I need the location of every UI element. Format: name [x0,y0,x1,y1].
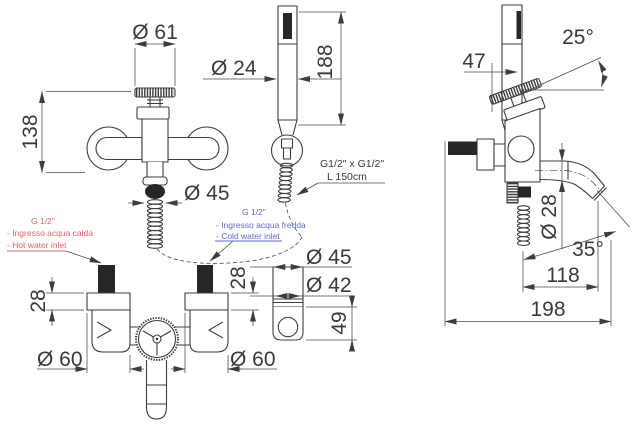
dim-spout-reach: 118 [546,264,579,287]
cold-italian-label: - Ingresso acqua fredda [216,220,306,230]
dim-right-flange-diameter: Ø 60 [230,348,276,371]
left-escutcheon-bottom [92,310,130,352]
technical-drawing: Ø 61 138 Ø 45 Ø 24 [0,0,640,427]
dim-bracket-inner: Ø 42 [306,274,352,297]
left-mount-flange [87,293,130,310]
cold-inlet-annotation: G 1/2" - Ingresso acqua fredda - Cold wa… [210,207,306,261]
dim-total-depth: 198 [530,298,565,321]
spout-side [540,161,605,199]
dim-left-inlet-depth: 28 [27,289,50,312]
dim-bracket-height: 49 [328,311,351,334]
drawing-sheet: Ø 61 138 Ø 45 Ø 24 [0,0,640,427]
mixer-body [142,119,168,162]
dim-spout-diameter: Ø 28 [538,194,561,240]
shower-hose-coil [278,163,293,202]
dim-right-inlet-depth: 28 [227,266,250,289]
side-hose-coil [518,206,530,246]
front-view: Ø 61 138 Ø 45 [19,21,230,248]
hot-english-label: - Hot water inlet [7,240,67,250]
dim-outlet-diameter: Ø 45 [184,182,230,205]
hot-thread-label: G 1/2" [31,216,55,226]
side-view: 47 25° Ø 28 35° 118 198 [445,5,630,326]
inlet-side [448,142,477,156]
outlet-neck [147,162,163,178]
holder-sleeve [273,267,303,307]
right-mount-flange [185,293,228,310]
front-hose-coil [148,200,163,249]
dim-handle-angle: 25° [562,26,594,49]
dim-bracket-outer: Ø 45 [306,246,352,269]
dim-shower-head-diameter: Ø 24 [211,57,257,80]
bottom-view: 28 28 Ø 60 Ø 60 [27,265,277,419]
dim-spout-angle: 35° [572,238,604,261]
shower-holder-ring [272,135,303,166]
right-arm [168,138,219,160]
hose-spec-line2: L 150cm [327,171,367,183]
hose-spec-line1: G1/2" x G1/2" [320,158,384,170]
dim-left-flange-diameter: Ø 60 [37,348,83,371]
dim-handle-diameter: Ø 61 [132,21,178,44]
bracket-side-view: Ø 45 Ø 42 49 [250,246,357,348]
valve-collar [137,107,169,119]
diverter-knob-side [508,136,534,162]
cold-english-label: - Cold water inlet [216,231,280,241]
dim-body-height: 138 [19,114,42,149]
right-escutcheon-bottom [190,310,228,352]
hot-italian-label: - Ingresso acqua calda [7,228,93,238]
dim-shower-length: 188 [314,44,337,79]
hose-connector [145,184,165,199]
cold-water-inlet-pipe [197,265,213,293]
diverter-wheel [136,318,178,360]
handle-stem [150,97,160,107]
cold-thread-label: G 1/2" [242,207,266,217]
spout-bottom-view [147,360,167,419]
left-arm [96,138,142,160]
holder-hook [273,307,303,340]
hot-inlet-annotation: G 1/2" - Ingresso acqua calda - Hot wate… [7,216,101,263]
hot-water-inlet-pipe [98,265,115,293]
dim-handle-offset: 47 [462,50,485,73]
spray-face [283,13,292,39]
wall-flange-side [477,139,494,170]
